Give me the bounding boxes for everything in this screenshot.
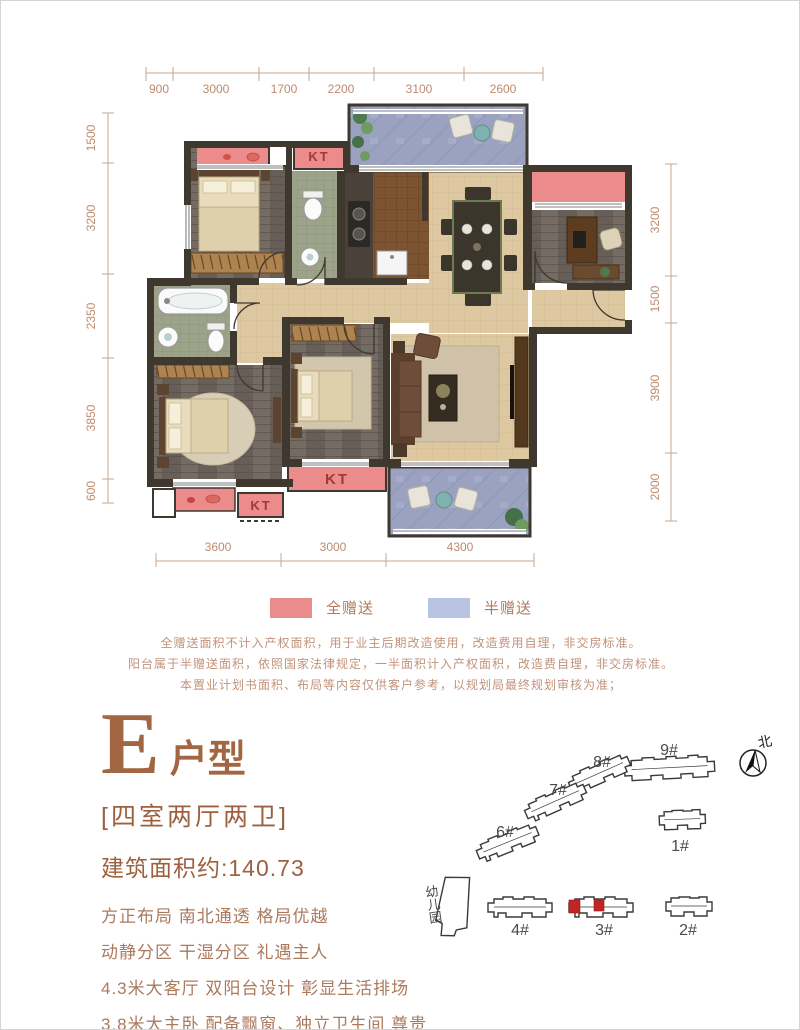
feature-line-3: 4.3米大客厅 双阳台设计 彰显生活排场 <box>101 971 431 1007</box>
dimension-labels-bottom: 3600 3000 4300 <box>205 540 474 554</box>
dim-top-3: 2200 <box>328 82 355 96</box>
dimension-labels-right: 3200 1500 3900 2000 <box>648 206 662 500</box>
wardrobe-middle <box>292 325 356 341</box>
unit-features: 方正布局 南北通透 格局优越 动静分区 干湿分区 礼遇主人 4.3米大客厅 双阳… <box>101 899 431 1030</box>
dim-bottom-2: 4300 <box>447 540 474 554</box>
building-label-8: 8# <box>593 754 611 771</box>
wardrobe-master <box>157 365 229 378</box>
kt-label-north: KT <box>308 149 329 164</box>
unit-rooms: [四室两厅两卫] <box>101 797 431 833</box>
toilet-master <box>207 323 225 352</box>
kt-label-south-box: KT <box>250 498 271 513</box>
dimension-lines-right <box>665 164 677 521</box>
tv-cabinet <box>515 337 528 447</box>
shoe-cabinet <box>573 265 619 279</box>
bay-window-study <box>532 172 625 202</box>
dim-bottom-0: 3600 <box>205 540 232 554</box>
north-label: 北 <box>756 732 773 751</box>
dim-top-4: 3100 <box>406 82 433 96</box>
north-arrow: 北 <box>740 732 773 776</box>
disclaimer-line-1: 全赠送面积不计入产权面积，用于业主后期改造使用，改造费用自理，非交房标准。 <box>1 633 800 654</box>
pillar-south <box>153 489 175 517</box>
kitchen-faucet <box>390 255 394 259</box>
building-4 <box>488 897 552 917</box>
bay-deco <box>206 495 220 503</box>
dim-left-1: 3200 <box>84 204 98 231</box>
bathtub <box>158 288 228 314</box>
entry-floor <box>532 290 625 327</box>
side-table <box>393 443 407 457</box>
building-label-9: 9# <box>660 742 678 759</box>
side-table <box>393 341 405 353</box>
bay-deco <box>187 497 195 503</box>
corridor-floor <box>237 283 289 363</box>
dimension-lines-left <box>102 113 114 503</box>
dim-top-5: 2600 <box>490 82 517 96</box>
highlighted-unit <box>569 900 580 913</box>
legend-label-full-gift: 全赠送 <box>326 597 374 618</box>
bay-window-master <box>173 488 235 511</box>
legend-label-half-gift: 半赠送 <box>484 597 532 618</box>
dimension-labels-left: 1500 3200 2350 3850 600 <box>84 124 98 501</box>
kindergarten-label: 幼儿园 <box>423 884 443 925</box>
dim-right-3: 2000 <box>648 473 662 500</box>
dim-left-3: 3850 <box>84 404 98 431</box>
dimension-labels-top: 900 3000 1700 2200 3100 2600 <box>149 82 517 96</box>
legend-swatch-half-gift <box>428 598 470 618</box>
unit-area: 建筑面积约:140.73 <box>101 849 431 883</box>
kt-label-south-strip: KT <box>325 471 349 488</box>
building-label-1: 1# <box>671 838 689 855</box>
dim-top-1: 3000 <box>203 82 230 96</box>
flyer-page: 900 3000 1700 2200 3100 2600 1500 3200 2… <box>0 0 800 1030</box>
sink-master-basin <box>164 333 172 341</box>
disclaimer-line-2: 阳台属于半赠送面积，依照国家法律规定，一半面积计入产权面积，改造费自理，非交房标… <box>1 654 800 675</box>
dim-left-4: 600 <box>84 481 98 501</box>
dim-right-1: 1500 <box>648 285 662 312</box>
wardrobe-north <box>191 253 283 273</box>
unit-info: E 户型 [四室两厅两卫] 建筑面积约:140.73 方正布局 南北通透 格局优… <box>101 701 431 1030</box>
stove <box>348 201 370 247</box>
plant-study <box>600 267 610 277</box>
unit-type-suffix: 户型 <box>170 731 246 789</box>
dim-left-0: 1500 <box>84 124 98 151</box>
building-label-3: 3# <box>595 922 613 939</box>
unit-title: E 户型 <box>101 701 431 789</box>
unit-letter: E <box>101 701 160 789</box>
bay-deco <box>247 153 259 161</box>
floorplan-svg: 900 3000 1700 2200 3100 2600 1500 3200 2… <box>1 1 800 581</box>
building-2 <box>666 897 712 916</box>
feature-line-1: 方正布局 南北通透 格局优越 <box>101 899 431 935</box>
pillar-north <box>269 146 287 166</box>
siteplan-svg: 9# 8# 7# 6# 1# 4# 3# 2# 幼儿园 北 <box>416 711 800 991</box>
dimension-lines-bottom <box>156 553 534 567</box>
building-3 <box>569 897 633 917</box>
disclaimer-line-3: 本置业计划书面积、布局等内容仅供客户参考，以规划局最终规划审核为准； <box>1 675 800 696</box>
kitchen-sink <box>377 251 407 275</box>
dim-bottom-1: 3000 <box>320 540 347 554</box>
building-1 <box>659 809 706 830</box>
building-label-6: 6# <box>496 824 514 841</box>
building-label-7: 7# <box>549 782 567 799</box>
building-label-4: 4# <box>511 922 529 939</box>
legend: 全赠送 半赠送 <box>1 597 800 618</box>
legend-swatch-full-gift <box>270 598 312 618</box>
highlighted-unit <box>594 900 604 911</box>
dim-right-0: 3200 <box>648 206 662 233</box>
desk <box>567 217 597 263</box>
sink-2-basin <box>307 254 314 261</box>
bay-deco <box>223 154 231 160</box>
toilet-2 <box>303 191 323 220</box>
building-label-2: 2# <box>679 922 697 939</box>
dim-top-2: 1700 <box>271 82 298 96</box>
bed-north <box>189 169 270 251</box>
coffee-table <box>429 375 457 421</box>
dimension-lines-top <box>146 67 543 81</box>
dim-left-2: 2350 <box>84 302 98 329</box>
disclaimer: 全赠送面积不计入产权面积，用于业主后期改造使用，改造费用自理，非交房标准。 阳台… <box>1 633 800 696</box>
dim-right-2: 3900 <box>648 374 662 401</box>
dim-top-0: 900 <box>149 82 169 96</box>
tv <box>510 365 514 419</box>
feature-line-2: 动静分区 干湿分区 礼遇主人 <box>101 935 431 971</box>
feature-line-4: 3.8米大主卧 配备飘窗、独立卫生间 尊贵罕有 <box>101 1007 431 1030</box>
